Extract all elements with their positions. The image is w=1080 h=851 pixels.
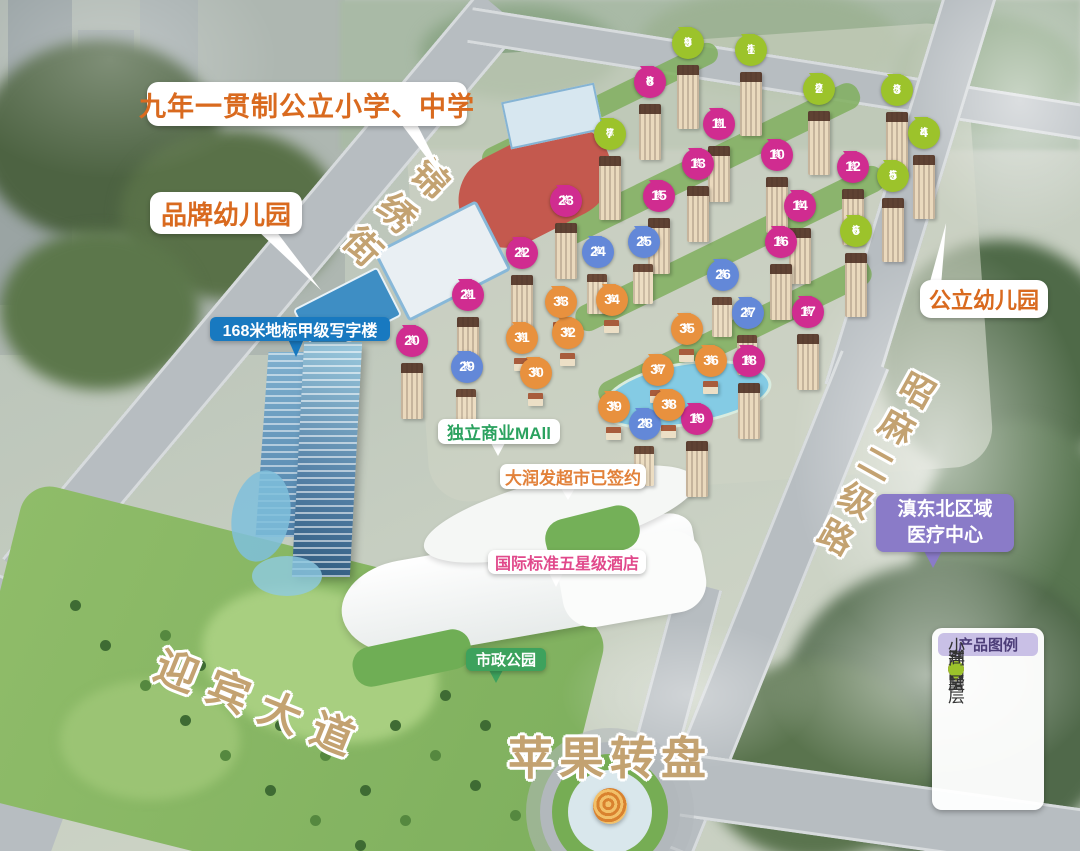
building-marker-12: 12栋 <box>837 151 869 183</box>
building-marker-23: 23栋 <box>550 185 582 217</box>
building-marker-6: 6栋 <box>840 215 872 247</box>
building-marker-34: 34栋 <box>596 284 628 316</box>
building-marker-39: 39栋 <box>598 391 630 423</box>
mall-callout-pointer <box>491 443 505 456</box>
building-marker-8: 8栋 <box>634 66 666 98</box>
building-marker-18: 18栋 <box>733 345 765 377</box>
product-legend: 产品图例 别墅洋房小高层高层 <box>932 628 1044 810</box>
building-marker-5: 5栋 <box>877 160 909 192</box>
building-marker-14: 14栋 <box>784 190 816 222</box>
building-marker-11: 11栋 <box>703 108 735 140</box>
civic-park-callout-pointer <box>489 670 503 683</box>
building-marker-13: 13栋 <box>682 148 714 180</box>
legend-items: 别墅洋房小高层高层 <box>932 660 1044 806</box>
building-marker-38: 38栋 <box>653 389 685 421</box>
building-marker-20: 20栋 <box>396 325 428 357</box>
masterplan-rendering: 1栋2栋3栋4栋5栋6栋7栋8栋9栋10栋11栋12栋13栋14栋15栋16栋1… <box>0 0 1080 851</box>
building-marker-36: 36栋 <box>695 345 727 377</box>
building-marker-31: 31栋 <box>506 322 538 354</box>
building-marker-10: 10栋 <box>761 139 793 171</box>
mall-callout: 独立商业MAll <box>438 419 560 444</box>
building-marker-4: 4栋 <box>908 117 940 149</box>
medical-center-line2: 医疗中心 <box>907 523 983 549</box>
building-marker-17: 17栋 <box>792 296 824 328</box>
building-marker-26: 26栋 <box>707 259 739 291</box>
building-marker-27: 27栋 <box>732 297 764 329</box>
building-marker-24: 24栋 <box>582 236 614 268</box>
building-marker-15: 15栋 <box>643 180 675 212</box>
medical-center-callout-pointer <box>924 551 942 568</box>
legend-item-highrise: 高层 <box>932 660 948 678</box>
building-marker-21: 21栋 <box>452 279 484 311</box>
supermarket-callout: 大润发超市已签约 <box>500 464 646 489</box>
apple-roundabout-label: 苹果转盘 <box>500 722 720 787</box>
hotel-callout-pointer <box>549 573 563 587</box>
building-marker-30: 30栋 <box>520 357 552 389</box>
public-kindergarten-callout: 公立幼儿园 <box>920 280 1048 318</box>
medical-center-line1: 滇东北区域 <box>897 497 992 523</box>
building-marker-16: 16栋 <box>765 226 797 258</box>
civic-park-callout: 市政公园 <box>466 648 546 671</box>
legend-item-label: 高层 <box>948 644 965 694</box>
building-marker-32: 32栋 <box>552 317 584 349</box>
building-marker-3: 3栋 <box>881 74 913 106</box>
building-marker-2: 2栋 <box>803 73 835 105</box>
building-marker-1: 1栋 <box>735 34 767 66</box>
school-callout: 九年一贯制公立小学、中学 <box>147 82 467 126</box>
building-marker-19: 19栋 <box>681 403 713 435</box>
building-marker-9: 9栋 <box>672 27 704 59</box>
brand-kindergarten-callout: 品牌幼儿园 <box>150 192 302 234</box>
building-marker-22: 22栋 <box>506 237 538 269</box>
hotel-callout: 国际标准五星级酒店 <box>488 550 646 574</box>
building-marker-37: 37栋 <box>642 354 674 386</box>
building-marker-7: 7栋 <box>594 118 626 150</box>
office-tower-callout-pointer <box>288 339 304 357</box>
building-marker-33: 33栋 <box>545 286 577 318</box>
building-marker-35: 35栋 <box>671 313 703 345</box>
building-marker-25: 25栋 <box>628 226 660 258</box>
building-marker-29: 29栋 <box>451 351 483 383</box>
medical-center-callout: 滇东北区域 医疗中心 <box>876 494 1014 552</box>
supermarket-callout-pointer <box>561 488 575 500</box>
office-tower-callout: 168米地标甲级写字楼 <box>210 317 390 341</box>
